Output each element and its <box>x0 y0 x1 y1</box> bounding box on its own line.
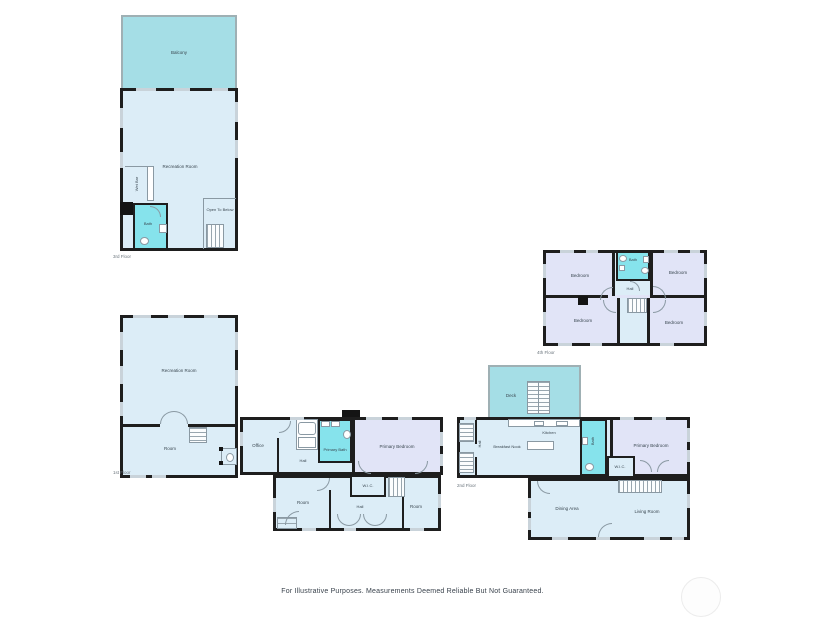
window <box>652 417 666 420</box>
window <box>302 528 316 531</box>
open-to-below-line <box>203 198 236 199</box>
wall-segment <box>219 461 223 465</box>
sink-fixture <box>534 421 544 426</box>
window <box>690 250 700 253</box>
window <box>664 250 678 253</box>
wet-bar-counter <box>147 166 154 201</box>
toilet-fixture <box>226 453 234 462</box>
bedroom-label: Bedroom <box>669 271 687 276</box>
window <box>212 88 228 91</box>
deck-label: Deck <box>506 394 516 399</box>
window <box>235 370 238 386</box>
hall-label: Hall <box>300 459 307 463</box>
window <box>687 428 690 442</box>
hall-label: Hall <box>478 441 482 448</box>
window <box>398 417 412 420</box>
bath-label: Bath <box>144 222 152 226</box>
chimney <box>578 296 588 305</box>
open-to-below-label: Open To Below <box>206 208 233 212</box>
recreation-room-label: Recreation Room <box>162 165 197 170</box>
stove-fixture <box>556 421 568 426</box>
room-label: Room <box>410 505 422 510</box>
window <box>586 250 598 253</box>
window <box>174 88 190 91</box>
window <box>687 494 690 508</box>
window <box>133 315 151 318</box>
toilet-fixture <box>585 463 594 471</box>
window <box>366 417 382 420</box>
room-label: Room <box>297 501 309 506</box>
floor-label-3rd: 3rd Floor <box>113 255 131 260</box>
stairs <box>206 224 224 248</box>
window <box>120 332 123 350</box>
sink-fixture <box>331 421 340 427</box>
window <box>120 152 123 168</box>
window <box>240 432 243 446</box>
toilet-fixture <box>343 430 351 439</box>
window <box>440 454 443 466</box>
bedroom-label: Bedroom <box>571 274 589 279</box>
stairs <box>618 480 662 493</box>
wall-segment <box>219 447 223 451</box>
window <box>558 343 572 346</box>
balcony-label: Balcony <box>171 51 187 56</box>
interior-wall <box>617 298 620 343</box>
wet-bar-divider <box>125 166 147 167</box>
recreation-room-label: Recreation Room <box>161 369 196 374</box>
window <box>235 332 238 350</box>
window <box>590 343 602 346</box>
window <box>596 537 610 540</box>
window <box>687 450 690 462</box>
sink-fixture <box>582 437 588 445</box>
window <box>120 108 123 128</box>
primary-bedroom-label: Primary Bedroom <box>379 445 414 450</box>
office-wall <box>277 438 279 475</box>
shower-fixture <box>298 437 316 448</box>
window <box>235 102 238 122</box>
window <box>660 343 674 346</box>
window <box>273 498 276 512</box>
window <box>620 417 634 420</box>
sink-fixture <box>159 224 167 233</box>
bedroom-label: Bedroom <box>665 321 683 326</box>
window <box>120 366 123 384</box>
sink-fixture <box>619 265 625 271</box>
living-room-label: Living Room <box>634 510 659 515</box>
window <box>528 518 531 530</box>
wic-label: W.I.C. <box>363 484 374 488</box>
stairs <box>627 298 647 313</box>
kitchen-label: Kitchen <box>542 431 555 435</box>
window <box>168 315 184 318</box>
window <box>410 528 424 531</box>
floor-label-4th: 4th Floor <box>537 351 555 356</box>
bath-label: Bath <box>591 437 595 445</box>
sink-fixture <box>321 421 330 427</box>
stair-rail <box>538 381 539 414</box>
window <box>152 475 166 478</box>
hall-label: Hall <box>627 287 634 291</box>
window <box>440 432 443 446</box>
window <box>552 537 568 540</box>
room-label: Room <box>164 447 176 452</box>
open-to-below-line <box>203 198 204 249</box>
stairs <box>189 427 207 443</box>
stairs <box>388 477 405 497</box>
chimney <box>120 202 133 215</box>
floor-label-2nd: 2nd Floor <box>457 484 476 489</box>
window <box>344 528 356 531</box>
stairs <box>459 423 474 442</box>
door-opening <box>160 424 188 427</box>
wic-label: W.I.C. <box>615 465 626 469</box>
window <box>235 140 238 158</box>
floor-label-1st: 1st Floor <box>113 471 131 476</box>
window <box>464 417 476 420</box>
bedroom-label: Bedroom <box>574 319 592 324</box>
primary-bedroom-label: Primary Bedroom <box>633 444 668 449</box>
dining-area-label: Dining Area <box>555 507 578 512</box>
window <box>644 537 660 540</box>
window <box>290 417 304 420</box>
window <box>204 315 218 318</box>
wet-bar-label: Wet Bar <box>135 177 139 191</box>
window <box>543 264 546 278</box>
toilet-fixture <box>619 255 627 262</box>
watermark-circle <box>681 577 721 617</box>
window <box>560 250 574 253</box>
window <box>136 88 156 91</box>
office-label: Office <box>252 444 264 449</box>
window <box>438 494 441 508</box>
window <box>130 475 146 478</box>
interior-wall <box>647 298 650 343</box>
interior-wall <box>329 490 331 531</box>
window <box>120 402 123 416</box>
window <box>528 498 531 512</box>
hall-label: Hall <box>357 505 364 509</box>
interior-wall <box>475 457 477 475</box>
interior-wall <box>546 295 608 298</box>
bath-label: Bath <box>629 258 637 262</box>
toilet-fixture <box>140 237 149 245</box>
window <box>672 537 684 540</box>
floorplan-sheet: Balcony Recreation Room Wet Bar Bath Ope… <box>0 0 825 619</box>
primary-bath-label: Primary Bath <box>323 448 346 452</box>
window <box>704 312 707 326</box>
window <box>543 312 546 326</box>
toilet-fixture <box>641 267 649 274</box>
stairs <box>459 452 474 473</box>
island-counter <box>527 441 554 450</box>
breakfast-nook-label: Breakfast Nook <box>493 445 520 449</box>
sink-fixture <box>643 256 649 263</box>
kitchen-counter <box>508 419 580 427</box>
tub-fixture <box>298 422 316 435</box>
window <box>704 264 707 278</box>
